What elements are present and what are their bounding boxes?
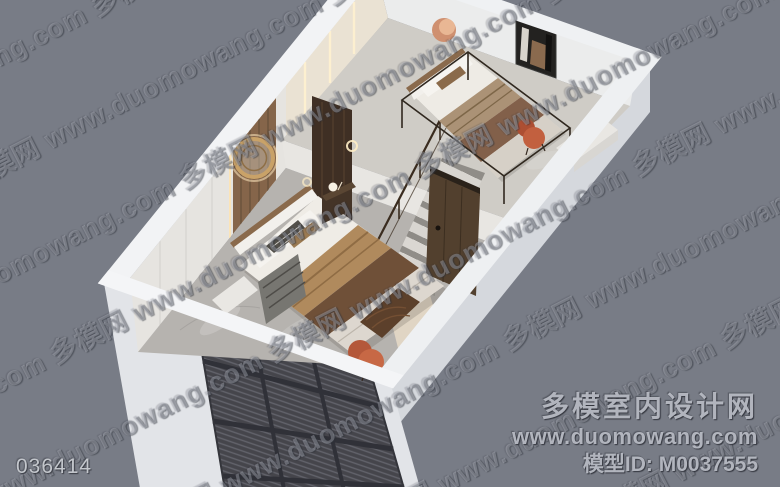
brand-site-url: www.duomowang.com [512, 423, 758, 451]
branding-block: 多模室内设计网 www.duomowang.com 模型ID: M0037555 [512, 391, 758, 479]
door-handle [436, 226, 441, 231]
screenshot-root: 多模网 www.duomowang.com 多模网 www.duomowang.… [0, 0, 780, 487]
brand-model-id: 模型ID: M0037555 [512, 451, 758, 479]
model-number-label: 036414 [16, 455, 92, 479]
brand-site-name: 多模室内设计网 [512, 391, 758, 423]
copper-disc-decor [432, 18, 456, 42]
table-lamp [329, 183, 338, 192]
